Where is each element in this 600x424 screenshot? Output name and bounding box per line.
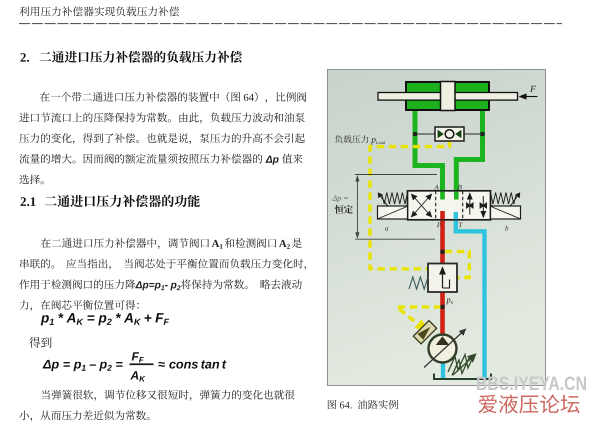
svg-text:BBS.IYEYA.CN: BBS.IYEYA.CN bbox=[476, 373, 587, 395]
